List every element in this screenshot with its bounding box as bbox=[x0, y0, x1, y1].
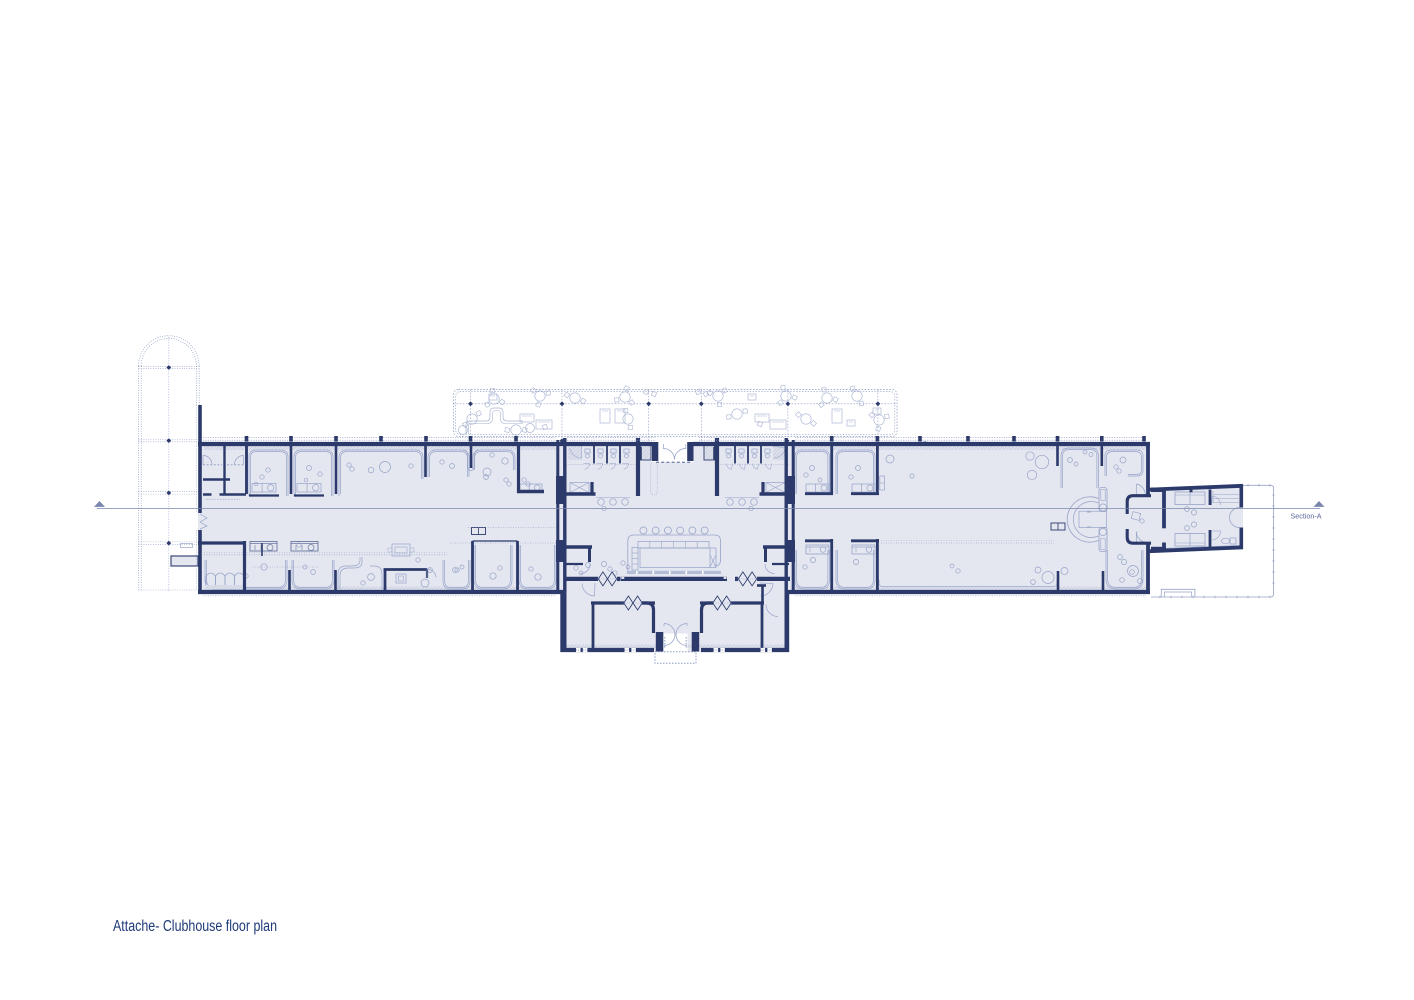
svg-text:Attache- Clubhouse floor plan: Attache- Clubhouse floor plan bbox=[113, 918, 277, 935]
svg-text:Section-A: Section-A bbox=[1291, 512, 1322, 521]
